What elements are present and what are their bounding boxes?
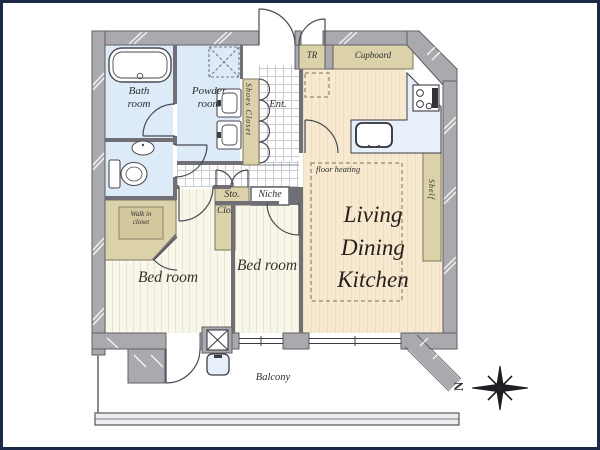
- entrance-label: Ent.: [257, 99, 299, 111]
- walk-in-closet-label: Walk in closet: [119, 210, 163, 226]
- compass-rose-icon: [472, 366, 528, 410]
- chamfer-wall-top-right: [407, 31, 457, 85]
- hallway-tile-floor: [177, 161, 299, 187]
- compass-north-label: N: [452, 382, 467, 391]
- slop-sink-icon: [207, 354, 229, 375]
- balcony-partition-wall: [128, 349, 165, 383]
- ldk-label: Living Dining Kitchen: [305, 199, 441, 297]
- floor-heating-label: floor heating: [316, 165, 360, 175]
- shoes-closet-label: Shoes Closet: [244, 83, 253, 165]
- chamfer-wall-bottom-right: [411, 341, 455, 385]
- bedroom-left-label: Bed room: [106, 269, 230, 287]
- balcony-label: Balcony: [233, 372, 313, 384]
- window-icon: [239, 336, 401, 346]
- toilet-room-floor: [105, 142, 173, 196]
- bedroom-center-label: Bed room: [233, 257, 301, 275]
- entrance-tile-floor: [259, 65, 299, 165]
- storage-label: Sto.: [215, 189, 249, 201]
- balcony-railing: [95, 413, 459, 425]
- niche-label: Niche: [251, 189, 289, 201]
- floor-plan: Bath room Powder room Shoes Closet Ent. …: [0, 0, 600, 450]
- trunk-room-label: TR: [299, 50, 325, 60]
- cupboard-label: Cupboard: [333, 50, 413, 60]
- closet-label: Clo.: [213, 206, 237, 217]
- powder-room-label: Powder room: [179, 85, 239, 110]
- bath-room-label: Bath room: [107, 85, 171, 110]
